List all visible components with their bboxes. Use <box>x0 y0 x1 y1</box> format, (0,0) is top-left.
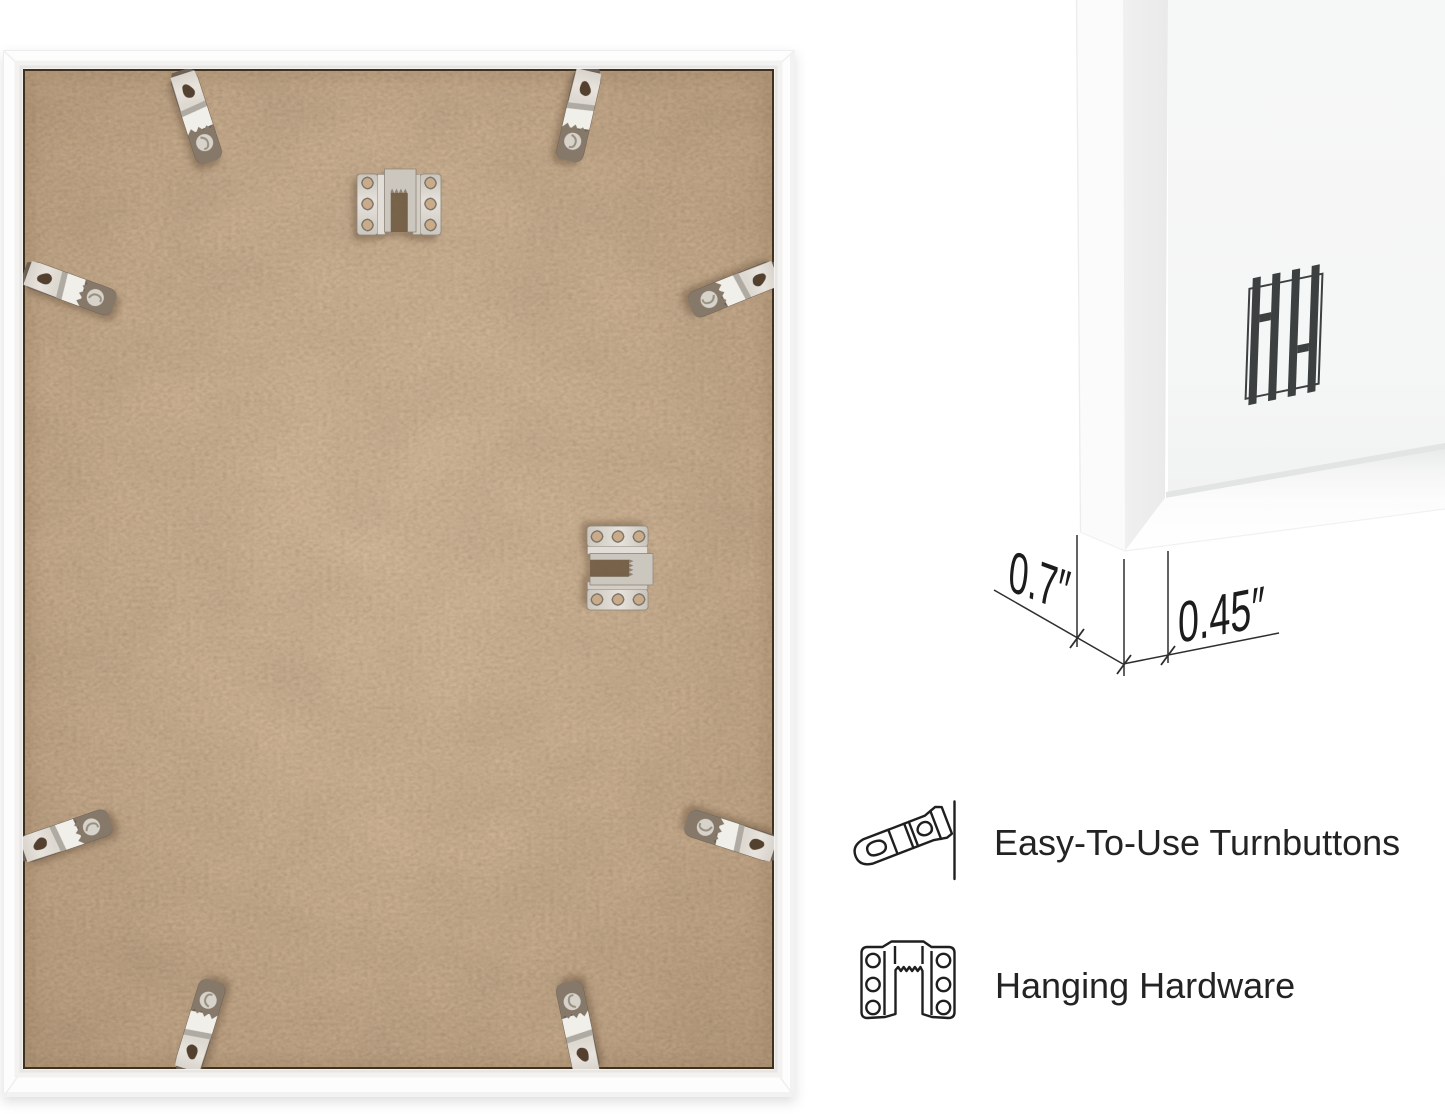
svg-text:0.7″: 0.7″ <box>1006 539 1073 625</box>
svg-text:Hanging Hardware: Hanging Hardware <box>995 965 1295 1006</box>
svg-text:0.45″: 0.45″ <box>1178 574 1265 656</box>
svg-text:Easy-To-Use Turnbuttons: Easy-To-Use Turnbuttons <box>994 822 1400 863</box>
